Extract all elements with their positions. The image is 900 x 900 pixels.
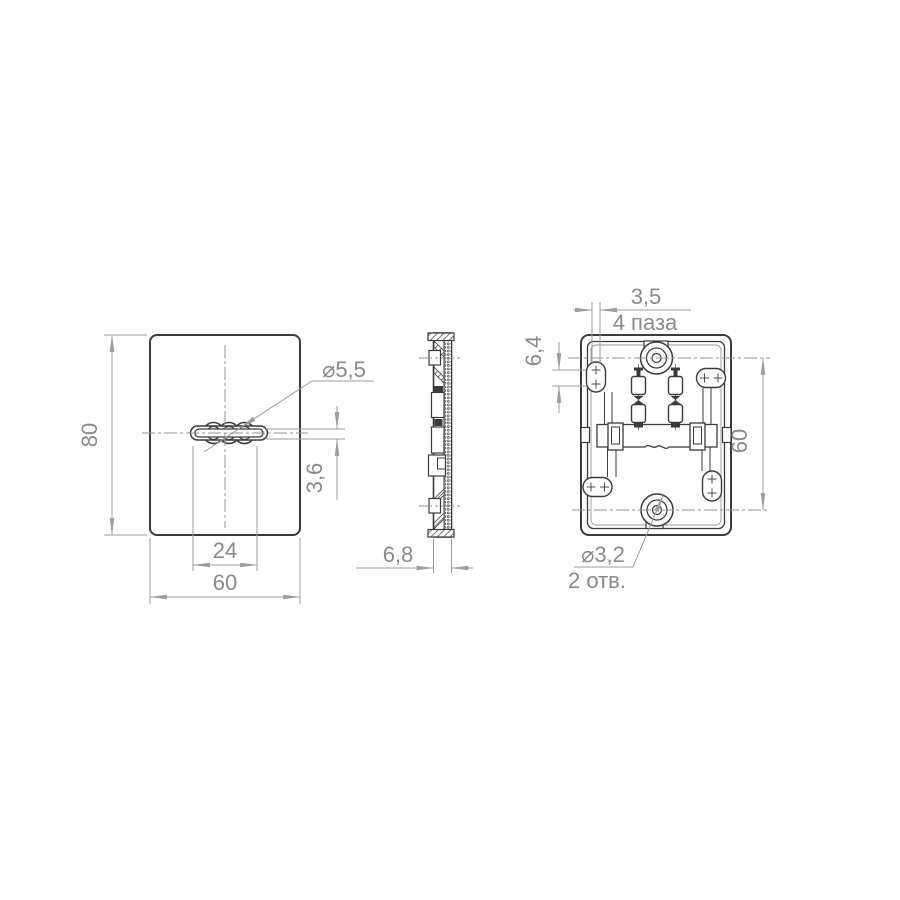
dim-text-dia-3-2: ⌀3,2 [581, 542, 625, 567]
dim-text-60: 60 [213, 570, 237, 595]
dim-text-dia-5-5: ⌀5,5 [322, 357, 366, 382]
side-section-view: 6,8 [356, 333, 473, 573]
front-view: 80 60 24 3,6 ⌀5,5 [77, 335, 374, 604]
dim-text-2-otv: 2 отв. [568, 568, 626, 593]
back-view: 3,5 4 паза 6,4 60 ⌀3,2 2 отв. [521, 284, 770, 593]
dim-hole-spacing: 60 [727, 358, 763, 510]
dim-text-60-back: 60 [727, 429, 752, 453]
dim-slot-width: 3,6 [266, 406, 345, 500]
dim-text-3-6: 3,6 [302, 463, 327, 494]
dim-text-24: 24 [213, 538, 237, 563]
front-centerlines [142, 345, 308, 528]
spring-stack-left [632, 364, 646, 430]
section-top-cap [428, 333, 454, 341]
drawing-sheet: 80 60 24 3,6 ⌀5,5 [0, 0, 900, 900]
dim-front-height: 80 [77, 335, 147, 535]
back-clamp-bar [581, 423, 731, 450]
clamp-tab-left [581, 428, 590, 443]
dim-groove-height: 6,4 [521, 336, 586, 413]
dim-text-6-8: 6,8 [383, 542, 414, 567]
section-bottom-cap [428, 530, 454, 538]
dim-text-80: 80 [77, 423, 102, 447]
section-wall-hatch [444, 340, 452, 530]
dim-thickness: 6,8 [356, 539, 473, 573]
dim-text-3-5: 3,5 [631, 284, 662, 309]
dim-text-4-paza: 4 паза [613, 310, 678, 335]
spring-stack-right [669, 364, 683, 430]
dim-text-6-4: 6,4 [521, 336, 546, 367]
technical-drawing: 80 60 24 3,6 ⌀5,5 [0, 0, 900, 900]
